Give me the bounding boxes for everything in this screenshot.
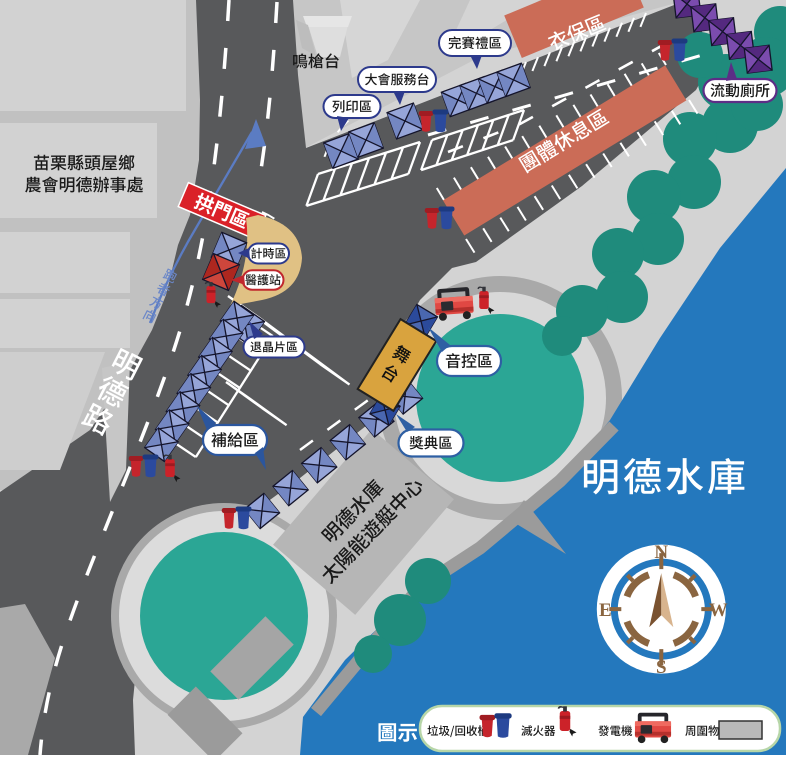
svg-text:S: S — [656, 657, 667, 678]
svg-text:N: N — [654, 542, 668, 563]
svg-text:W: W — [709, 600, 728, 621]
svg-text:E: E — [599, 600, 612, 621]
